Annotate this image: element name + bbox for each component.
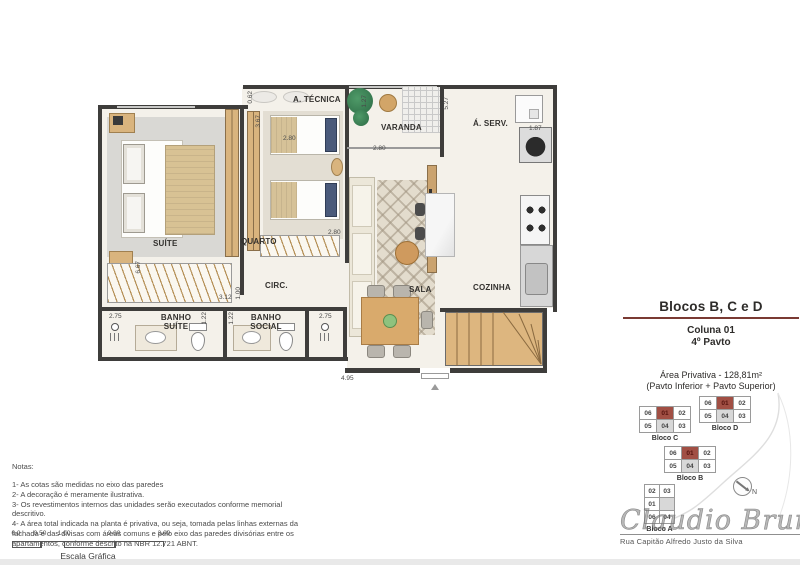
washing-machine	[519, 127, 552, 163]
block-cell: 04	[657, 420, 673, 432]
wardrobe	[225, 109, 239, 257]
block-cell: 03	[660, 485, 674, 497]
wardrobe	[247, 111, 260, 251]
street-address: Rua Capitão Alfredo Justo da Silva	[620, 537, 800, 546]
block-cell-highlighted: 01	[682, 447, 698, 459]
stool	[415, 203, 425, 216]
room-label-banho-suite: BANHO SUÍTE	[153, 313, 199, 331]
dimension-label: 3.67	[255, 115, 262, 128]
shower-spray-icon	[320, 333, 331, 341]
floor-plan: 0.62 3.67 1.27 2.80 2.80 5.27 1.87 2.80 …	[95, 85, 560, 395]
architect-signature: Claudio Brum	[620, 505, 800, 536]
nightstand	[331, 158, 343, 176]
block-cell: 05	[700, 410, 716, 422]
window	[117, 106, 195, 108]
scale-tick-label: 2.00	[108, 530, 121, 537]
bed-blanket	[271, 182, 297, 218]
page-edge	[0, 559, 800, 565]
armchair	[395, 241, 419, 265]
sofa-cushion	[352, 185, 372, 227]
dimension-label: 0.62	[247, 91, 254, 104]
block-cell: 06	[665, 447, 681, 459]
plant	[353, 110, 369, 126]
scale-tick-label: 3.00	[158, 530, 171, 537]
block-key-bloco-d: 06 01 02 05 04 03 Bloco D	[699, 396, 751, 432]
balcony-rail	[347, 147, 440, 149]
note-item: 3- Os revestimentos internos das unidade…	[12, 500, 314, 520]
wall	[543, 308, 547, 368]
block-cell: 02	[734, 397, 750, 409]
stove	[520, 195, 550, 245]
wall	[223, 311, 227, 357]
sofa-cushion	[352, 233, 372, 275]
block-grid: 06 01 02 05 04 03	[664, 446, 716, 473]
block-cell: 04	[717, 410, 733, 422]
wall	[343, 307, 347, 361]
note-item: 2- A decoração é meramente ilustrativa.	[12, 490, 314, 500]
sink	[145, 331, 166, 344]
column-label: Coluna 01	[623, 325, 799, 336]
block-key-bloco-c: 06 01 02 05 04 03 Bloco C	[639, 406, 691, 442]
block-cell: 03	[734, 410, 750, 422]
centerpiece	[383, 314, 397, 328]
dimension-label: 1.22	[201, 312, 208, 325]
dimension-label: 4.95	[341, 375, 354, 382]
scale-segment	[64, 542, 116, 548]
block-cell: 03	[674, 420, 690, 432]
scale-tick	[163, 541, 164, 547]
graphic-scale: 0.0 0.50 1.00 2.00 3.00 Escala Gráfica	[12, 530, 182, 562]
sheet-title: Blocos B, C e D	[623, 299, 799, 314]
dimension-label: 1.22	[228, 312, 235, 325]
block-cell: 02	[674, 407, 690, 419]
north-compass: N	[733, 477, 759, 503]
sink	[525, 263, 548, 295]
stool	[415, 227, 425, 240]
dimension-label: 2.75	[319, 313, 332, 320]
notes-title: Notas:	[12, 462, 314, 471]
balcony-table	[379, 94, 397, 112]
dimension-label: 6.67	[135, 261, 142, 274]
pillow	[325, 183, 337, 217]
bed-blanket	[165, 145, 215, 235]
room-label-cozinha: COZINHA	[473, 283, 511, 292]
block-label: Bloco C	[639, 435, 691, 442]
staircase	[445, 312, 543, 366]
room-label-suite: SUÍTE	[153, 239, 178, 248]
dimension-label: 2.80	[328, 229, 341, 236]
note-item: 1- As cotas são medidas no eixo das pare…	[12, 480, 314, 490]
lamp	[113, 116, 123, 125]
block-cell: 06	[640, 407, 656, 419]
compass-north-label: N	[752, 489, 757, 496]
room-label-a-tecnica: A. TÉCNICA	[293, 95, 341, 104]
block-key-bloco-b: 06 01 02 05 04 03 Bloco B	[664, 446, 716, 482]
dimension-label: 2.80	[373, 145, 386, 152]
block-cell: 05	[640, 420, 656, 432]
dimension-label: 1.27	[361, 95, 368, 108]
pillow	[123, 193, 145, 233]
block-cell: 06	[700, 397, 716, 409]
scale-tick-label: 0.0	[11, 530, 20, 537]
block-cell: 02	[699, 447, 715, 459]
block-grid: 06 01 02 05 04 03	[699, 396, 751, 423]
private-area-label: Área Privativa - 128,81m²	[623, 370, 799, 380]
room-label-circ: CIRC.	[265, 281, 288, 290]
room-label-banho-social: BANHO SOCIAL	[241, 313, 291, 331]
scale-segment	[12, 542, 42, 548]
chair	[393, 345, 411, 358]
equipment	[251, 91, 277, 103]
dimension-label: 2.75	[109, 313, 122, 320]
shower-head-icon	[321, 323, 329, 331]
title-rule	[623, 317, 799, 319]
sink	[242, 331, 261, 344]
scale-tick-label: 1.00	[58, 530, 71, 537]
room-label-a-serv: Á. SERV.	[473, 119, 508, 128]
block-cell: 04	[682, 460, 698, 472]
block-cell-highlighted: 01	[657, 407, 673, 419]
block-cell: 02	[645, 485, 659, 497]
wall	[240, 105, 244, 295]
scale-tick-label: 0.50	[34, 530, 47, 537]
room-label-sala: SALA	[409, 285, 432, 294]
kitchen-island	[425, 193, 455, 257]
wall	[305, 311, 309, 357]
dimension-label: 3.12	[219, 294, 232, 301]
block-grid: 06 01 02 05 04 03	[639, 406, 691, 433]
room-label-varanda: VARANDA	[381, 123, 422, 132]
dimension-label: 1.87	[529, 125, 542, 132]
pillow	[123, 144, 145, 184]
block-cell-highlighted: 01	[717, 397, 733, 409]
block-cell: 03	[699, 460, 715, 472]
dimension-label: 1.00	[235, 287, 242, 300]
dimension-label: 5.27	[443, 97, 450, 110]
heater-detail	[529, 109, 539, 119]
block-label: Bloco B	[664, 475, 716, 482]
shower-head-icon	[111, 323, 119, 331]
signature-block: Claudio Brum Rua Capitão Alfredo Justo d…	[620, 505, 800, 546]
floor-label: 4º Pavto	[623, 337, 799, 348]
title-block: Blocos B, C e D Coluna 01 4º Pavto Área …	[623, 299, 799, 391]
plan-sheet: 0.62 3.67 1.27 2.80 2.80 5.27 1.87 2.80 …	[0, 0, 800, 565]
entrance-arrow-icon	[431, 384, 439, 390]
closet	[107, 263, 232, 303]
chair	[421, 311, 433, 329]
wall	[553, 85, 557, 312]
shower-spray-icon	[110, 333, 121, 341]
dimension-label: 2.80	[283, 135, 296, 142]
block-label: Bloco D	[699, 425, 751, 432]
wall	[98, 105, 102, 361]
wall	[98, 357, 348, 361]
room-label-quarto: QUARTO	[241, 237, 277, 246]
door-leaf	[421, 373, 449, 379]
block-cell: 05	[665, 460, 681, 472]
chair	[367, 345, 385, 358]
pillow	[325, 118, 337, 152]
